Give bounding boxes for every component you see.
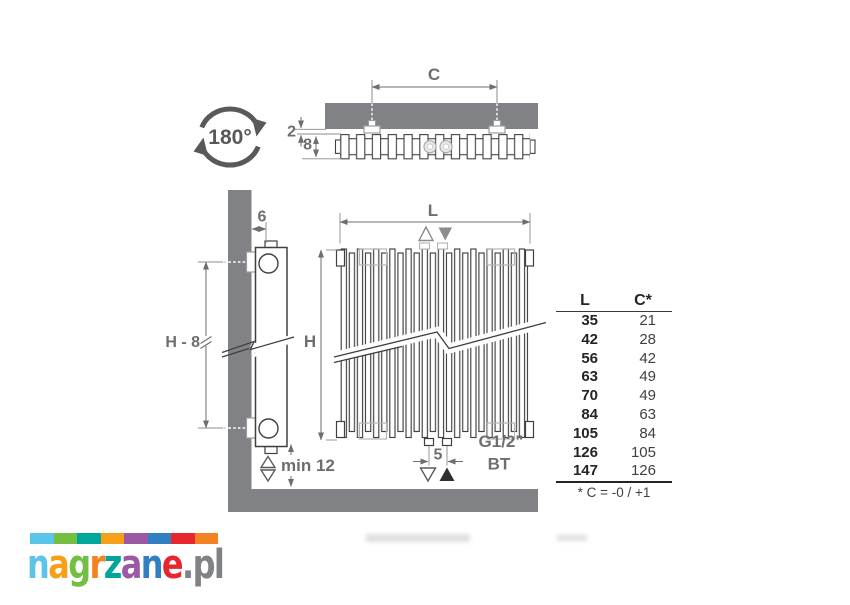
table-footnote: * C = -0 / +1 (556, 483, 672, 500)
dimension-h: H (304, 250, 337, 440)
dimension-h-label: H (304, 332, 316, 351)
table-header-l: L (556, 290, 614, 311)
front-view: L H 5 G1/2" BT (304, 201, 546, 481)
ceiling-wall-bar (325, 103, 538, 129)
floor-bar (228, 489, 538, 512)
top-view: C 2 8 (287, 65, 538, 159)
return-down-triangle-icon (439, 228, 453, 241)
dimension-h-minus-8: H - 8 (165, 262, 223, 428)
table-row: 147126 (556, 462, 672, 481)
connection-stub-right (443, 439, 452, 446)
dimension-l: L (340, 201, 530, 244)
dimension-c-label: C (428, 65, 440, 84)
dimension-c: C (372, 65, 497, 87)
cropped-watermark (557, 535, 587, 541)
wall-bracket-bottom (247, 418, 256, 438)
table-row: 6349 (556, 368, 672, 387)
rotate-180-icon: 180° (194, 109, 267, 165)
flow-up-triangle-icon (261, 457, 275, 468)
dimension-wall-offset-label: 6 (258, 209, 267, 226)
table-row: 3521 (556, 312, 672, 331)
logo-wordmark: nagrzane.pl (27, 544, 223, 586)
dimension-min-12-label: min 12 (281, 456, 335, 475)
wall-bracket-top (247, 252, 256, 272)
radiator-front-view (334, 243, 546, 446)
radiator-installation-diagram: 180° (0, 0, 850, 600)
table-row: 7049 (556, 387, 672, 406)
table-header: L C* (556, 290, 672, 312)
dimension-l-label: L (428, 201, 438, 220)
table-row: 8463 (556, 406, 672, 425)
dimension-pipe-spacing: 5 (413, 446, 463, 466)
flow-down-triangle-icon (261, 470, 275, 481)
dimensions-table: L C* 3521 4228 5642 6349 7049 8463 10584… (556, 290, 672, 500)
return-hollow-triangle-icon (421, 468, 436, 481)
nagrzane-logo: nagrzane.pl (27, 533, 272, 586)
supply-solid-triangle-icon (440, 468, 455, 482)
dimension-pipe-spacing-label: 5 (434, 447, 443, 464)
table-row: 5642 (556, 350, 672, 369)
dimension-h-minus-8-label: H - 8 (165, 334, 200, 351)
table-row: 4228 (556, 331, 672, 350)
table-row: 126105 (556, 444, 672, 463)
connection-stub-left (425, 439, 434, 446)
table-body: 3521 4228 5642 6349 7049 8463 10584 1261… (556, 312, 672, 483)
dimension-gap-label: 2 (287, 124, 296, 141)
supply-up-triangle-icon (419, 227, 433, 241)
dimension-wall-offset: 6 (252, 209, 267, 244)
table-header-c: C* (614, 290, 672, 311)
dimension-depth-label: 8 (303, 137, 312, 154)
connection-type-label: BT (488, 455, 511, 474)
radiator-top-view (336, 134, 536, 159)
table-row: 10584 (556, 425, 672, 444)
thread-size-label: G1/2" (479, 432, 524, 451)
rotation-angle-label: 180° (208, 126, 251, 149)
cropped-watermark (366, 534, 470, 542)
